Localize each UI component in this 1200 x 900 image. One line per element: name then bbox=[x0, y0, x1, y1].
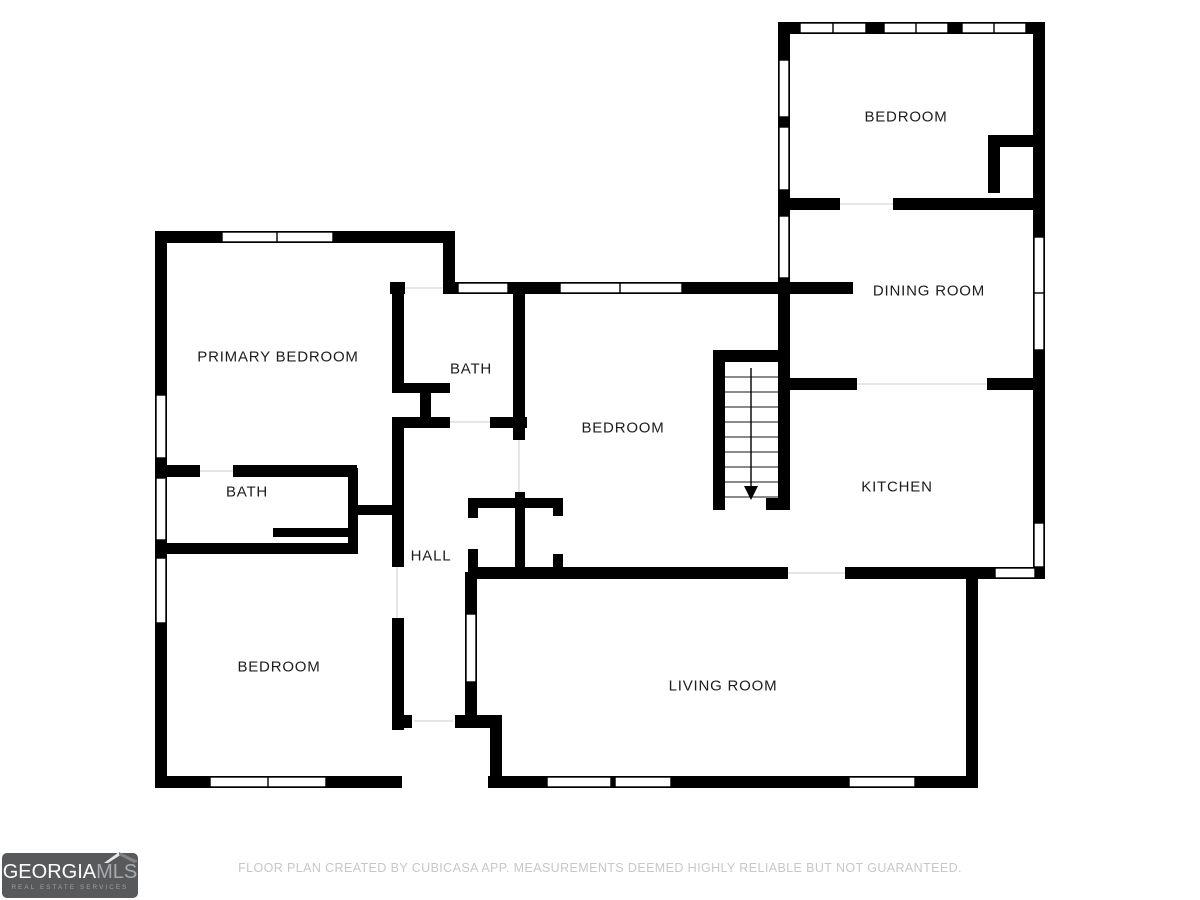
window bbox=[615, 777, 671, 787]
window bbox=[210, 777, 326, 787]
window bbox=[156, 395, 166, 458]
georgia-mls-logo: GEORGIA MLS REAL ESTATE SERVICES bbox=[2, 853, 138, 898]
window bbox=[884, 23, 948, 33]
roof-icon bbox=[104, 852, 138, 863]
window bbox=[547, 777, 611, 787]
room-label-bath-middle: BATH bbox=[450, 361, 492, 378]
room-label-primary-bedroom: PRIMARY BEDROOM bbox=[197, 349, 358, 366]
window bbox=[779, 216, 789, 278]
window bbox=[849, 777, 915, 787]
window bbox=[800, 23, 866, 33]
logo-suffix-text: MLS bbox=[96, 862, 137, 882]
window bbox=[779, 127, 789, 190]
room-label-hall: HALL bbox=[411, 548, 452, 565]
room-label-dining-room: DINING ROOM bbox=[873, 283, 985, 300]
window bbox=[466, 614, 476, 682]
footer-disclaimer-text: FLOOR PLAN CREATED BY CUBICASA APP. MEAS… bbox=[0, 861, 1200, 875]
window bbox=[458, 283, 508, 293]
window bbox=[1034, 523, 1044, 567]
window bbox=[560, 283, 682, 293]
window bbox=[156, 558, 166, 623]
floor-plan-drawing bbox=[0, 0, 1200, 900]
room-label-bath-left: BATH bbox=[226, 484, 268, 501]
floor-plan-page: BEDROOM DINING ROOM KITCHEN BEDROOM BATH… bbox=[0, 0, 1200, 900]
window bbox=[779, 60, 789, 117]
room-label-bedroom-middle: BEDROOM bbox=[581, 420, 664, 437]
window bbox=[156, 478, 166, 540]
staircase bbox=[725, 368, 778, 500]
window bbox=[1034, 237, 1044, 350]
room-label-bedroom-bottomleft: BEDROOM bbox=[237, 659, 320, 676]
threshold-lines-layer bbox=[200, 204, 987, 721]
room-label-living-room: LIVING ROOM bbox=[669, 678, 778, 695]
window bbox=[962, 23, 1026, 33]
room-label-kitchen: KITCHEN bbox=[861, 479, 932, 496]
logo-brand-text: GEORGIA bbox=[3, 862, 96, 882]
window bbox=[222, 232, 333, 242]
stairs-down-arrow bbox=[744, 368, 758, 500]
logo-tagline-text: REAL ESTATE SERVICES bbox=[11, 884, 128, 891]
room-label-bedroom-topright: BEDROOM bbox=[864, 109, 947, 126]
window bbox=[995, 568, 1035, 578]
